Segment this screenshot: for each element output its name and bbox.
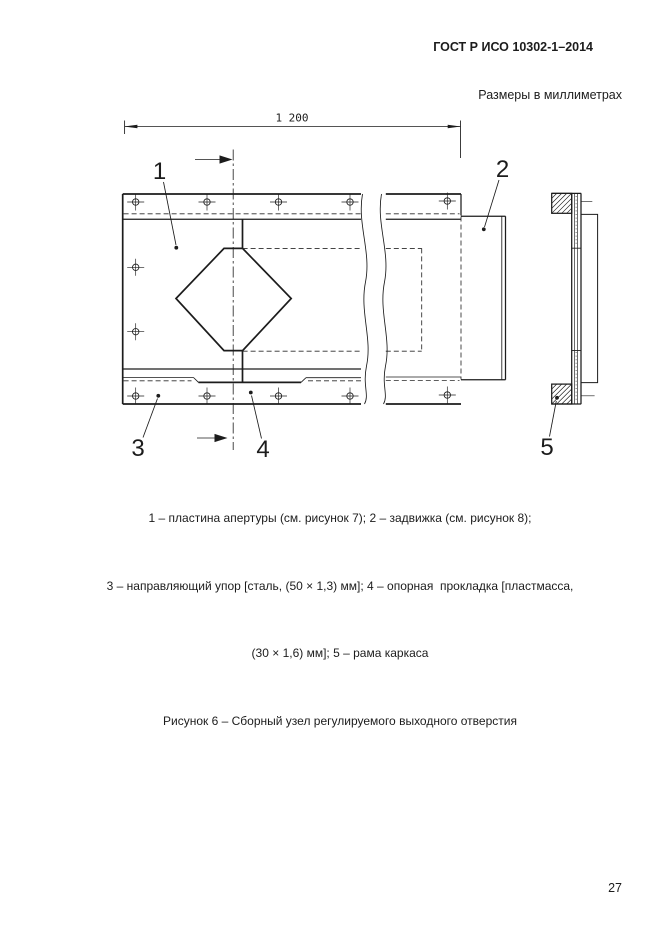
callout-4: 4 — [249, 391, 270, 463]
screw-axis-ticks — [581, 202, 594, 396]
leader-dot — [156, 394, 160, 398]
leader-line — [252, 396, 262, 439]
screw-hole — [127, 388, 144, 405]
screw-hole — [199, 388, 216, 405]
screw-hole — [199, 194, 216, 211]
hatch-top — [552, 193, 572, 213]
screw-hole — [439, 193, 456, 210]
screw-hole — [127, 194, 144, 211]
screw-hole — [342, 194, 359, 211]
hatch-bottom — [552, 384, 572, 404]
hidden-outlet-opening — [243, 248, 422, 351]
leader-dot — [482, 227, 486, 231]
dim-arrow-right — [448, 125, 461, 129]
callout-5-label: 5 — [540, 434, 553, 461]
document-page: ГОСТ Р ИСО 10302-1–2014 Размеры в миллим… — [0, 0, 661, 936]
break-lines — [361, 194, 387, 404]
side-view-caps — [552, 193, 582, 404]
callout-2-label: 2 — [496, 156, 509, 183]
callout-1-label: 1 — [153, 158, 166, 185]
leader-dot — [555, 396, 559, 400]
legend-line-1: 1 – пластина апертуры (см. рисунок 7); 2… — [30, 507, 650, 530]
callout-1: 1 — [153, 158, 178, 250]
slide-top-bottom-edges — [461, 216, 506, 380]
screw-hole — [439, 387, 456, 404]
leader-dot — [249, 391, 253, 395]
page-number: 27 — [608, 881, 622, 895]
break-line-left — [361, 194, 368, 404]
screw-hole — [270, 388, 287, 405]
slide-gate — [461, 216, 506, 380]
callout-3-label: 3 — [131, 435, 144, 462]
figure-title: Рисунок 6 – Сборный узел регулируемого в… — [30, 710, 650, 733]
screw-hole — [127, 323, 144, 340]
legend-line-2: 3 – направляющий упор [сталь, (50 × 1,3)… — [30, 575, 650, 598]
screw-hole — [342, 388, 359, 405]
callout-4-label: 4 — [256, 436, 269, 463]
leader-dot — [174, 246, 178, 250]
aperture-level-ticks — [572, 248, 581, 350]
slide-side-profile — [581, 214, 598, 382]
view-arrow-bottom-head — [215, 434, 228, 442]
view-arrow-top-head — [220, 155, 233, 163]
hidden-opening-outline — [243, 248, 422, 351]
dimension-value: 1 200 — [275, 112, 308, 125]
leader-line — [550, 401, 557, 437]
dim-arrow-left — [125, 125, 138, 129]
figure-caption: 1 – пластина апертуры (см. рисунок 7); 2… — [30, 462, 650, 777]
dimension-1200: 1 200 — [125, 112, 461, 159]
screw-hole — [127, 259, 144, 276]
top-guide-rail — [123, 194, 461, 219]
leader-line — [485, 180, 500, 227]
side-view — [552, 193, 598, 404]
bottom-guide-rail — [123, 369, 461, 382]
legend-line-3: (30 × 1,6) мм]; 5 – рама каркаса — [30, 642, 650, 665]
break-line-right — [380, 194, 387, 404]
callout-5: 5 — [540, 396, 559, 461]
screw-hole — [270, 194, 287, 211]
